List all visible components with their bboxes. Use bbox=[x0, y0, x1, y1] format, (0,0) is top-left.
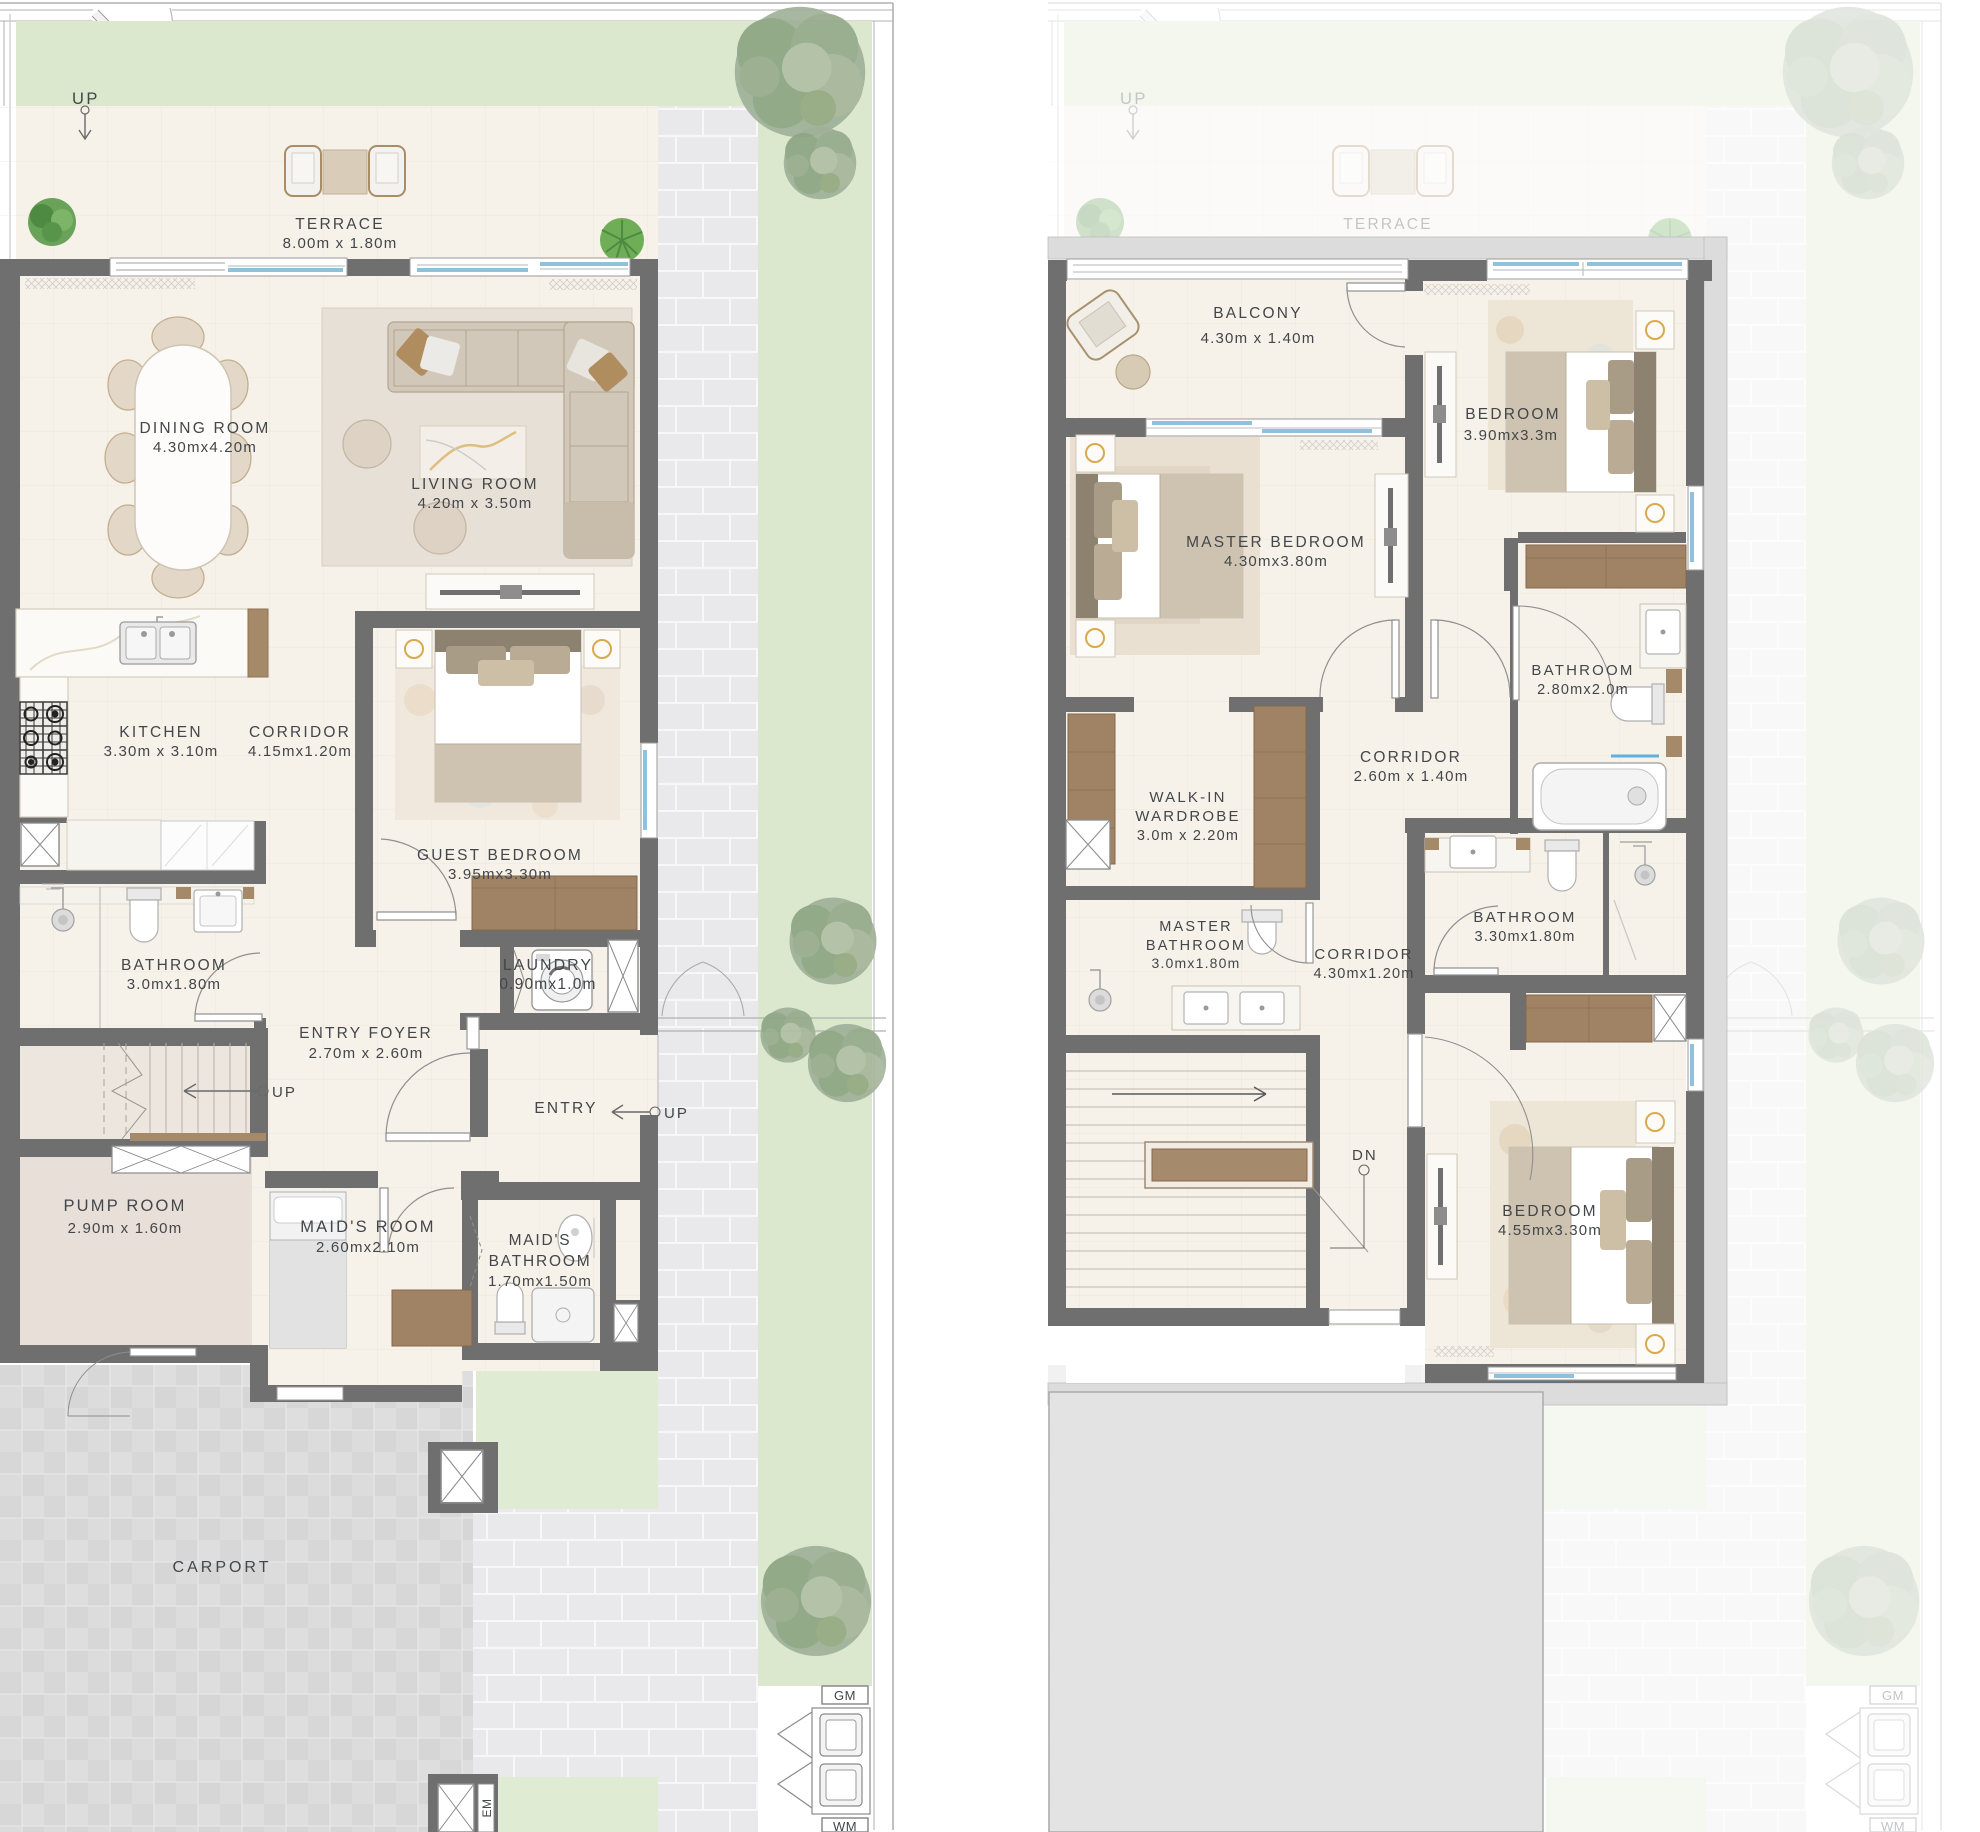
svg-text:4.15mx1.20m: 4.15mx1.20m bbox=[248, 743, 352, 760]
svg-text:BEDROOM: BEDROOM bbox=[1502, 1203, 1598, 1220]
svg-text:CARPORT: CARPORT bbox=[173, 1559, 272, 1576]
svg-text:MAID'S ROOM: MAID'S ROOM bbox=[300, 1218, 436, 1236]
svg-text:3.0m x 2.20m: 3.0m x 2.20m bbox=[1137, 828, 1239, 844]
svg-text:BATHROOM: BATHROOM bbox=[121, 957, 227, 974]
svg-text:BATHROOM: BATHROOM bbox=[489, 1253, 592, 1270]
svg-text:EM: EM bbox=[480, 1799, 494, 1818]
svg-text:4.30mx1.20m: 4.30mx1.20m bbox=[1313, 966, 1414, 982]
svg-text:4.20m x 3.50m: 4.20m x 3.50m bbox=[418, 495, 533, 512]
svg-text:PUMP ROOM: PUMP ROOM bbox=[63, 1197, 186, 1215]
svg-text:BATHROOM: BATHROOM bbox=[1473, 909, 1576, 926]
svg-text:3.0mx1.80m: 3.0mx1.80m bbox=[1151, 955, 1240, 971]
svg-text:1.70mx1.50m: 1.70mx1.50m bbox=[488, 1273, 592, 1290]
svg-text:WALK-IN: WALK-IN bbox=[1149, 789, 1226, 806]
svg-text:UP: UP bbox=[72, 90, 100, 108]
svg-text:ENTRY: ENTRY bbox=[534, 1100, 597, 1117]
svg-text:3.0mx1.80m: 3.0mx1.80m bbox=[127, 976, 222, 993]
svg-text:DINING ROOM: DINING ROOM bbox=[140, 420, 271, 437]
svg-text:CORRIDOR: CORRIDOR bbox=[1314, 946, 1413, 963]
svg-text:ENTRY FOYER: ENTRY FOYER bbox=[299, 1025, 433, 1042]
svg-text:MASTER: MASTER bbox=[1159, 919, 1233, 935]
svg-text:CORRIDOR: CORRIDOR bbox=[1360, 749, 1462, 766]
svg-text:GM: GM bbox=[834, 1688, 856, 1703]
svg-text:MAID'S: MAID'S bbox=[509, 1232, 572, 1249]
svg-text:BALCONY: BALCONY bbox=[1213, 305, 1302, 322]
svg-text:8.00m x 1.80m: 8.00m x 1.80m bbox=[283, 235, 398, 252]
svg-text:3.30mx1.80m: 3.30mx1.80m bbox=[1474, 929, 1575, 945]
svg-text:BATHROOM: BATHROOM bbox=[1146, 938, 1246, 954]
svg-text:2.90m x 1.60m: 2.90m x 1.60m bbox=[68, 1220, 183, 1237]
svg-text:WM: WM bbox=[833, 1819, 857, 1832]
svg-text:TERRACE: TERRACE bbox=[295, 216, 384, 233]
svg-text:3.95mx3.30m: 3.95mx3.30m bbox=[448, 866, 552, 883]
svg-text:KITCHEN: KITCHEN bbox=[119, 724, 202, 741]
svg-text:2.60mx2.10m: 2.60mx2.10m bbox=[316, 1239, 420, 1256]
svg-text:2.60m x 1.40m: 2.60m x 1.40m bbox=[1354, 768, 1469, 785]
svg-text:4.55mx3.30m: 4.55mx3.30m bbox=[1498, 1222, 1602, 1239]
svg-text:MASTER BEDROOM: MASTER BEDROOM bbox=[1186, 534, 1366, 551]
svg-text:3.30m x 3.10m: 3.30m x 3.10m bbox=[104, 743, 219, 760]
svg-text:GUEST BEDROOM: GUEST BEDROOM bbox=[417, 847, 583, 864]
svg-text:UP: UP bbox=[664, 1105, 689, 1122]
svg-text:LIVING ROOM: LIVING ROOM bbox=[411, 476, 539, 493]
svg-text:2.70m x 2.60m: 2.70m x 2.60m bbox=[309, 1045, 424, 1062]
svg-text:WARDROBE: WARDROBE bbox=[1135, 808, 1240, 825]
svg-text:BEDROOM: BEDROOM bbox=[1465, 406, 1561, 423]
svg-text:2.80mx2.0m: 2.80mx2.0m bbox=[1537, 682, 1629, 698]
svg-text:3.90mx3.3m: 3.90mx3.3m bbox=[1464, 427, 1559, 444]
svg-text:4.30mx3.80m: 4.30mx3.80m bbox=[1224, 553, 1328, 570]
svg-text:LAUNDRY: LAUNDRY bbox=[503, 957, 593, 974]
svg-text:CORRIDOR: CORRIDOR bbox=[249, 724, 351, 741]
svg-text:UP: UP bbox=[272, 1084, 297, 1101]
svg-text:0.90mx1.0m: 0.90mx1.0m bbox=[499, 976, 596, 993]
svg-text:BATHROOM: BATHROOM bbox=[1531, 662, 1634, 679]
svg-text:DN: DN bbox=[1352, 1147, 1378, 1164]
svg-text:4.30m x 1.40m: 4.30m x 1.40m bbox=[1201, 330, 1316, 347]
svg-text:4.30mx4.20m: 4.30mx4.20m bbox=[153, 439, 257, 456]
